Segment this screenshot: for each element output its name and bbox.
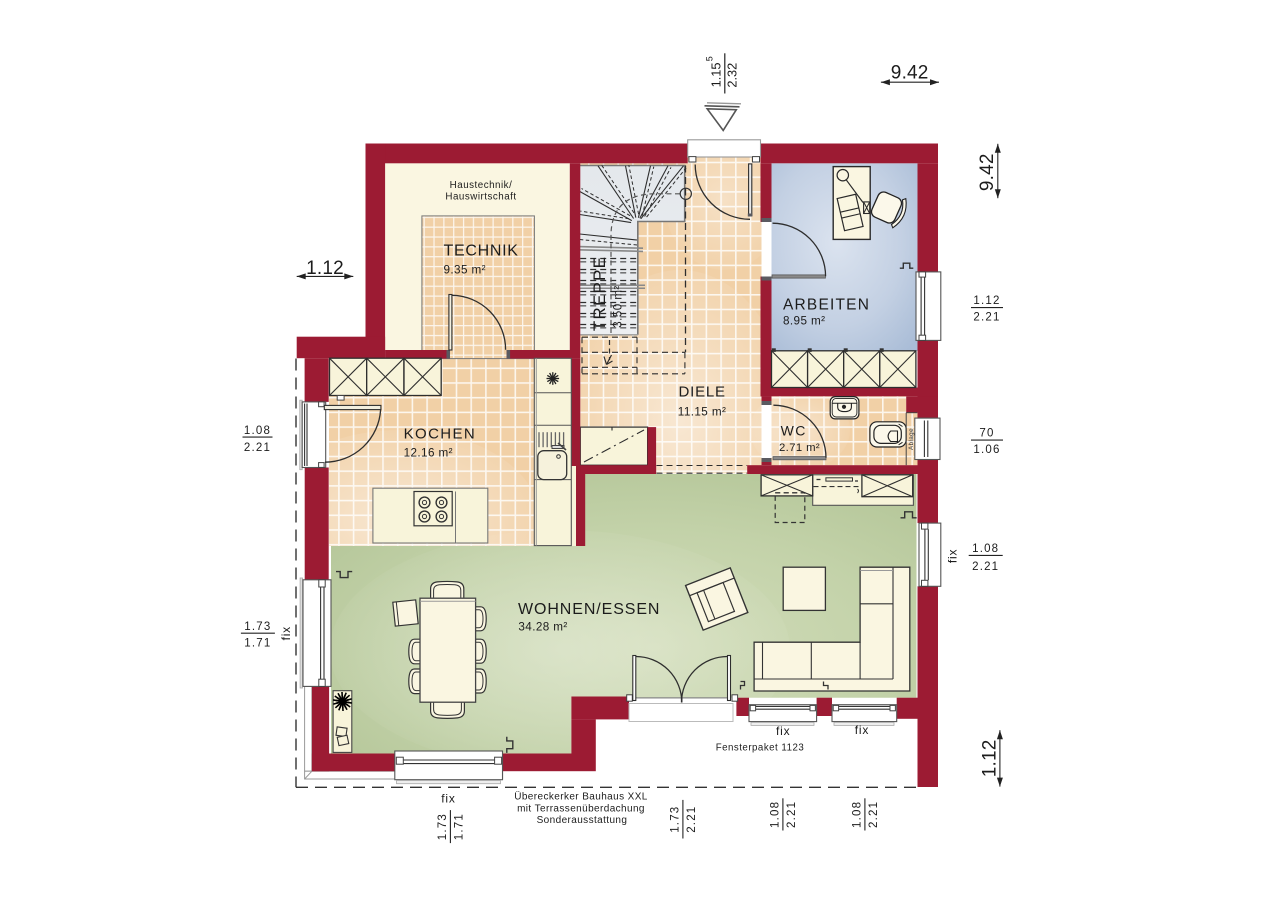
svg-text:Fensterpaket 1123: Fensterpaket 1123 <box>716 743 805 754</box>
svg-text:3.50 m²: 3.50 m² <box>613 285 625 328</box>
svg-text:8.95 m²: 8.95 m² <box>783 315 825 328</box>
svg-text:2.21: 2.21 <box>868 801 880 828</box>
svg-text:Hauswirtschaft: Hauswirtschaft <box>445 191 516 202</box>
svg-text:1.71: 1.71 <box>244 638 271 650</box>
svg-text:fix: fix <box>855 723 869 737</box>
svg-text:2.21: 2.21 <box>244 442 271 454</box>
svg-text:mit Terrassenüberdachung: mit Terrassenüberdachung <box>517 804 645 815</box>
svg-text:1.08: 1.08 <box>769 801 781 828</box>
svg-text:2.21: 2.21 <box>972 561 999 573</box>
svg-text:fix: fix <box>776 724 790 738</box>
svg-text:fix: fix <box>279 626 293 640</box>
svg-text:TECHNIK: TECHNIK <box>444 243 519 260</box>
svg-text:1.73: 1.73 <box>437 813 449 840</box>
svg-text:1.71: 1.71 <box>453 813 465 840</box>
svg-text:1.12: 1.12 <box>973 295 1000 307</box>
svg-text:2.21: 2.21 <box>973 312 1000 324</box>
svg-text:1.08: 1.08 <box>972 543 999 555</box>
svg-text:2.21: 2.21 <box>786 801 798 828</box>
svg-text:2.21: 2.21 <box>686 806 698 833</box>
svg-text:1.73: 1.73 <box>244 621 271 633</box>
svg-text:1.08: 1.08 <box>851 801 863 828</box>
svg-text:1.08: 1.08 <box>244 425 271 437</box>
svg-text:TREPPE: TREPPE <box>590 256 609 331</box>
svg-text:11.15 m²: 11.15 m² <box>678 405 726 418</box>
svg-text:DIELE: DIELE <box>679 383 726 400</box>
svg-text:Sonderausstattung: Sonderausstattung <box>537 815 628 826</box>
svg-text:fix: fix <box>441 792 455 806</box>
svg-text:9.42: 9.42 <box>977 153 998 191</box>
svg-text:fix: fix <box>945 549 959 563</box>
svg-text:2.32: 2.32 <box>725 63 740 88</box>
svg-text:70: 70 <box>979 428 994 440</box>
svg-text:Haustechnik/: Haustechnik/ <box>450 180 513 191</box>
svg-text:1.06: 1.06 <box>973 444 1000 456</box>
svg-text:9.35 m²: 9.35 m² <box>444 264 486 277</box>
svg-text:1.12: 1.12 <box>980 740 1001 778</box>
svg-text:1.15: 1.15 <box>709 62 724 87</box>
svg-text:34.28 m²: 34.28 m² <box>518 620 567 633</box>
svg-text:Übereckerker Bauhaus XXL: Übereckerker Bauhaus XXL <box>514 791 648 803</box>
svg-text:2.71 m²: 2.71 m² <box>779 442 820 454</box>
svg-text:Ablage: Ablage <box>908 428 915 450</box>
svg-text:5: 5 <box>704 56 714 61</box>
svg-text:ARBEITEN: ARBEITEN <box>783 297 870 314</box>
svg-text:9.42: 9.42 <box>891 63 929 84</box>
svg-text:KOCHEN: KOCHEN <box>404 426 477 443</box>
svg-text:WOHNEN/ESSEN: WOHNEN/ESSEN <box>518 601 660 618</box>
svg-text:1.73: 1.73 <box>669 806 681 833</box>
svg-text:12.16 m²: 12.16 m² <box>404 447 453 460</box>
svg-text:WC: WC <box>781 422 807 438</box>
